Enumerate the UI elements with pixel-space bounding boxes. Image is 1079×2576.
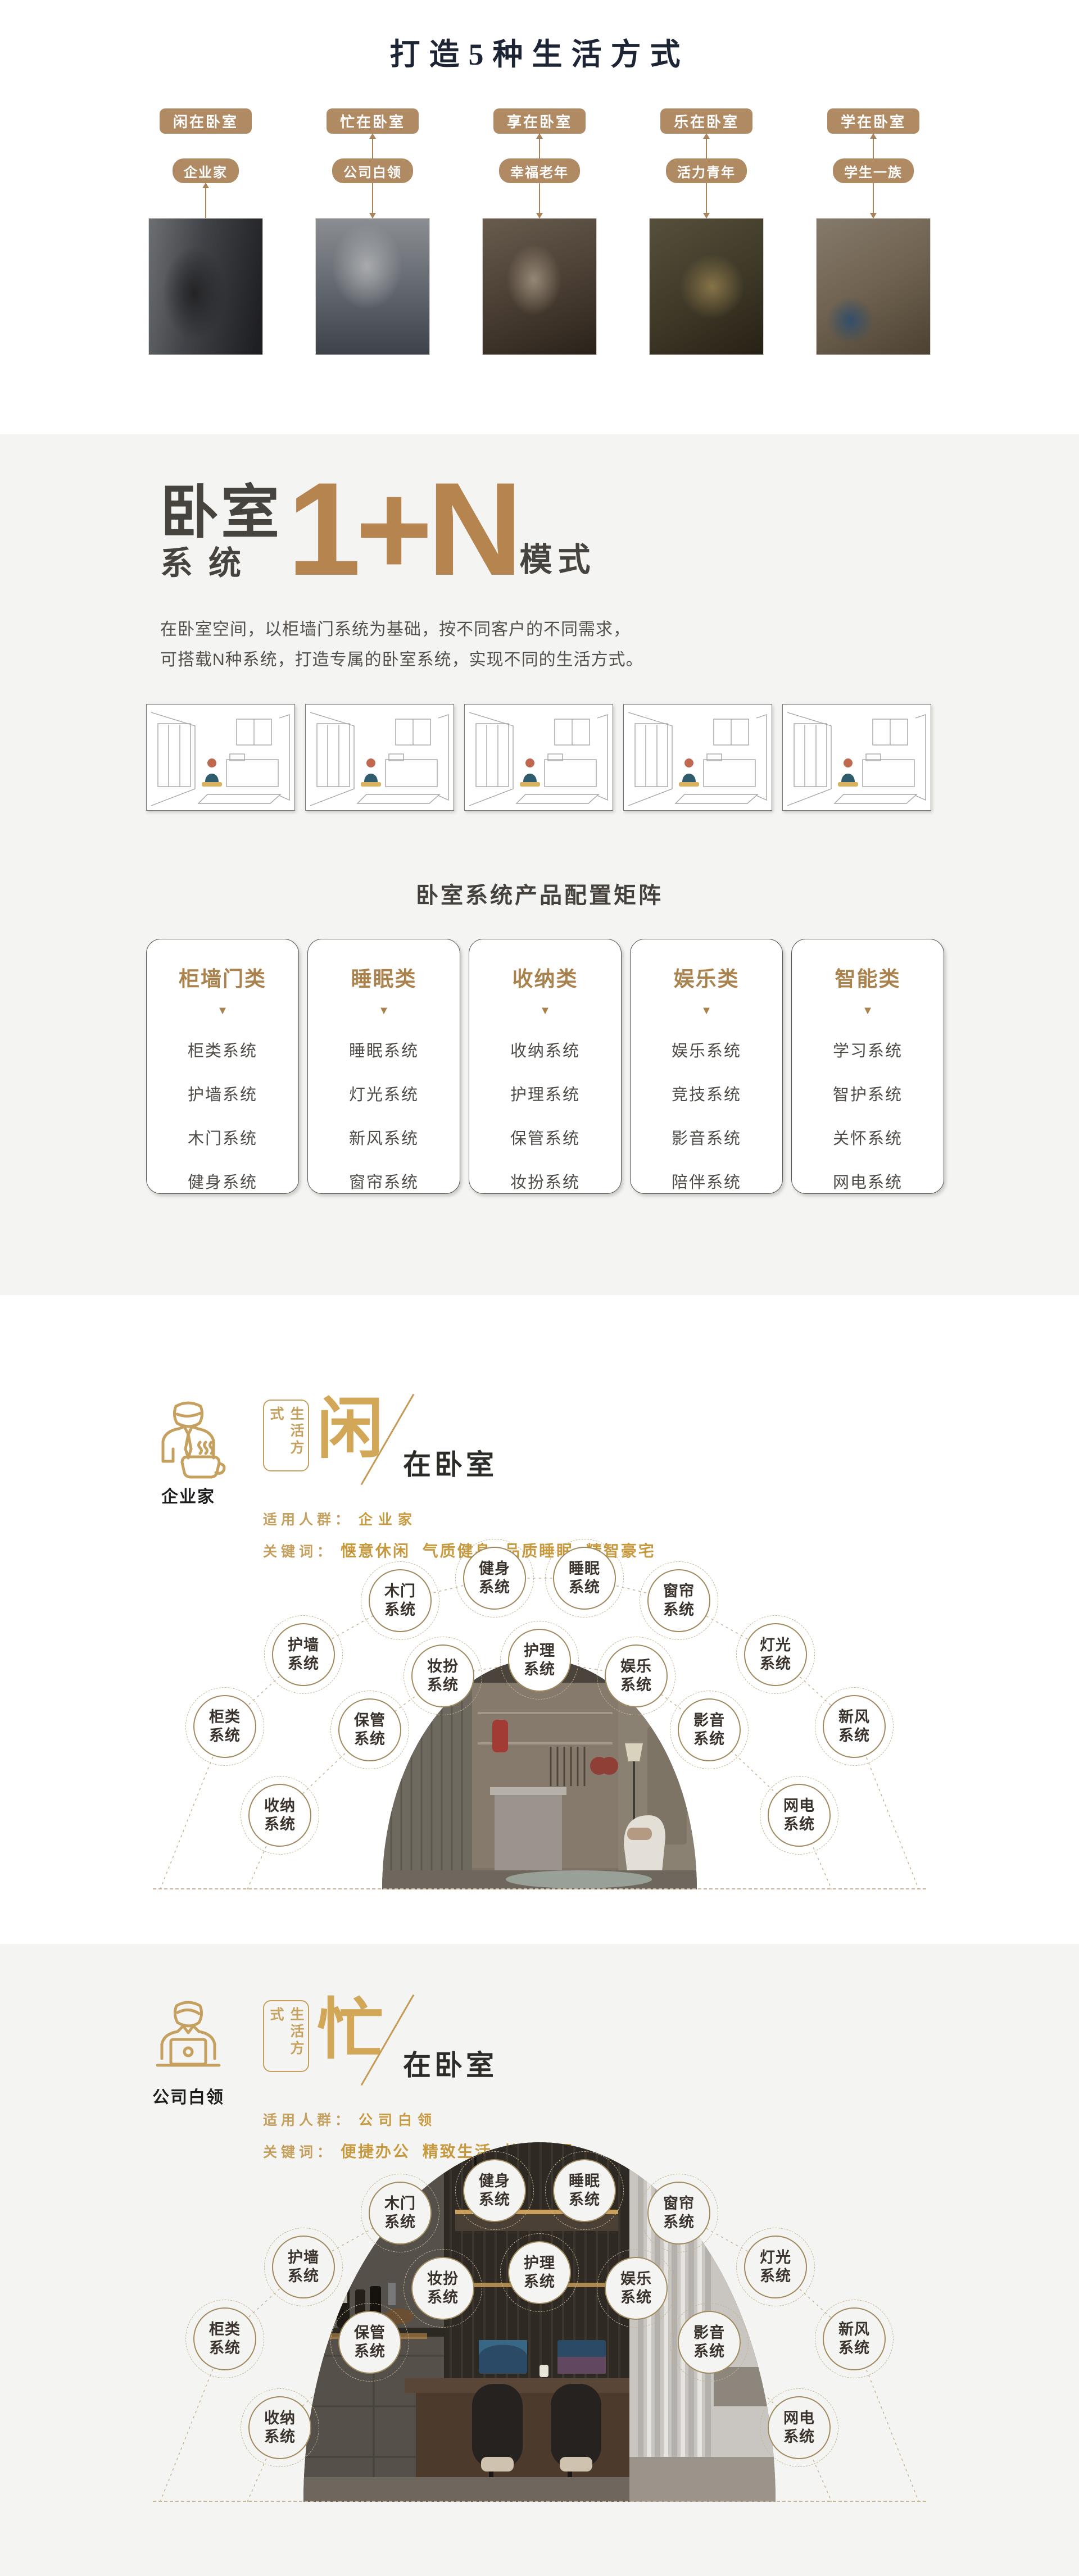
category-card: 收纳类 ▼ 收纳系统 护理系统 保管系统 妆扮系统 — [469, 939, 622, 1194]
bedroom-systems-poster: 打造5种生活方式 闲在卧室 企业家 忙在卧室 — [0, 0, 1079, 2576]
room-sketch-drawing — [147, 705, 294, 810]
system-item: 妆扮系统 — [469, 1169, 621, 1193]
headline-word-bedroom: 卧室 — [160, 485, 282, 541]
category-card: 柜墙门类 ▼ 柜类系统 护墙系统 木门系统 健身系统 — [146, 939, 299, 1194]
system-circle: 灯光 系统 — [736, 1615, 815, 1694]
audience-value: 企业家 — [359, 1512, 418, 1528]
category-title: 收纳类 — [469, 962, 621, 992]
white-collar-laptop-icon — [146, 1996, 230, 2080]
system-item: 柜类系统 — [147, 1038, 298, 1061]
up-arrow-icon — [536, 133, 543, 139]
system-item: 保管系统 — [469, 1125, 621, 1149]
up-arrow-icon — [870, 133, 877, 139]
connector-line — [372, 134, 373, 158]
room-illustrations — [146, 704, 933, 811]
lifestyle-box-label: 生活方式 — [263, 2000, 309, 2072]
system-circle: 保管 系统 — [330, 1691, 409, 1769]
system-circle: 木门 系统 — [361, 1561, 439, 1640]
up-arrow-icon — [202, 183, 209, 188]
category-title: 智能类 — [792, 962, 944, 992]
headline-word-system: 系统 — [160, 547, 282, 580]
persona-label: 公司白领 — [152, 2083, 224, 2108]
leisure-systems-fan: 柜类 系统 护墙 系统 木门 系统 — [146, 1530, 933, 1889]
category-card: 睡眠类 ▼ 睡眠系统 灯光系统 新风系统 窗帘系统 — [307, 939, 460, 1194]
student-study-photo — [816, 218, 931, 355]
system-circle: 收纳 系统 — [241, 2388, 319, 2467]
persona-tag: 幸福老年 — [499, 158, 580, 183]
section-five-lifestyles: 打造5种生活方式 闲在卧室 企业家 忙在卧室 — [0, 0, 1079, 434]
room-sketch-drawing — [624, 705, 772, 810]
system-item: 智护系统 — [792, 1082, 944, 1105]
system-item: 收纳系统 — [469, 1038, 621, 1061]
system-item: 木门系统 — [147, 1125, 298, 1149]
triangle-down-icon: ▼ — [147, 1005, 298, 1017]
lifestyle-column: 享在卧室 幸福老年 — [482, 108, 597, 355]
connector-line — [205, 183, 206, 218]
lifestyle-box-label: 生活方式 — [263, 1400, 309, 1471]
triangle-down-icon: ▼ — [792, 1005, 944, 1017]
lifestyle-column: 忙在卧室 公司白领 — [315, 108, 430, 355]
system-circle: 网电 系统 — [760, 1776, 838, 1855]
system-circle: 妆扮 系统 — [404, 1637, 482, 1715]
lifestyle-tag: 闲在卧室 — [160, 108, 252, 134]
system-item: 网电系统 — [792, 1169, 944, 1193]
system-circle: 护理 系统 — [500, 1621, 579, 1700]
lifestyle-column: 闲在卧室 企业家 — [148, 108, 263, 355]
office-lady-laptop-photo — [315, 218, 430, 355]
down-arrow-icon — [536, 213, 543, 219]
connector-line — [372, 183, 373, 218]
system-item: 关怀系统 — [792, 1125, 944, 1149]
up-arrow-icon — [369, 133, 376, 139]
down-arrow-icon — [369, 213, 376, 219]
system-item: 竞技系统 — [631, 1082, 782, 1105]
system-circle: 新风 系统 — [815, 2300, 894, 2378]
system-item: 娱乐系统 — [631, 1038, 782, 1061]
lifestyle-column: 乐在卧室 活力青年 — [649, 108, 764, 355]
lifestyle-columns: 闲在卧室 企业家 忙在卧室 公司白领 — [148, 108, 931, 355]
busy-systems-fan: 柜类 系统 护墙 系统 木门 系统 — [146, 2142, 933, 2502]
connector-line — [873, 183, 874, 218]
system-item: 学习系统 — [792, 1038, 944, 1061]
system-item: 睡眠系统 — [308, 1038, 460, 1061]
category-card: 娱乐类 ▼ 娱乐系统 竞技系统 影音系统 陪伴系统 — [630, 939, 783, 1194]
system-circle: 护墙 系统 — [264, 2228, 343, 2306]
page-title: 打造5种生活方式 — [0, 0, 1079, 74]
audience-label: 适用人群： — [263, 1512, 353, 1528]
connector-line — [873, 134, 874, 158]
category-title: 柜墙门类 — [147, 962, 298, 992]
lifestyle-big-character: 忙 — [317, 1996, 383, 2065]
system-circle: 健身 系统 — [455, 1539, 534, 1618]
triangle-down-icon: ▼ — [308, 1005, 460, 1017]
young-friends-photo — [649, 218, 764, 355]
system-circle: 柜类 系统 — [185, 1687, 264, 1766]
connector-line — [706, 134, 707, 158]
connector-line — [539, 134, 540, 158]
lifestyle-rest-word: 在卧室 — [403, 1442, 497, 1492]
system-circle: 睡眠 系统 — [545, 1539, 624, 1618]
businessman-coffee-icon — [146, 1395, 230, 1479]
category-card: 智能类 ▼ 学习系统 智护系统 关怀系统 网电系统 — [791, 939, 944, 1194]
mode-description: 在卧室空间，以柜墙门系统为基础，按不同客户的不同需求， 可搭载N种系统，打造专属… — [146, 615, 933, 675]
connector-line — [706, 183, 707, 218]
audience-row: 适用人群：企业家 — [263, 1509, 656, 1529]
lifestyle-tag: 忙在卧室 — [327, 108, 419, 134]
system-circle: 妆扮 系统 — [404, 2249, 482, 2328]
system-circle: 收纳 系统 — [241, 1776, 319, 1855]
system-item: 护墙系统 — [147, 1082, 298, 1105]
triangle-down-icon: ▼ — [631, 1005, 782, 1017]
system-item: 陪伴系统 — [631, 1169, 782, 1193]
system-circle: 护理 系统 — [500, 2233, 579, 2312]
lifestyle-tag: 享在卧室 — [493, 108, 586, 134]
system-circle: 影音 系统 — [670, 2303, 749, 2382]
room-sketch-drawing — [465, 705, 613, 810]
persona-label: 企业家 — [161, 1483, 215, 1507]
leisure-profile-header: 企业家 生活方式 闲 在卧室 适用人群：企业家 关键词：惬意休闲 气质健身 品质… — [0, 1295, 1079, 1561]
system-circle: 灯光 系统 — [736, 2228, 815, 2306]
down-arrow-icon — [870, 213, 877, 219]
system-circle: 睡眠 系统 — [545, 2151, 624, 2230]
lifestyle-rest-word: 在卧室 — [403, 2043, 497, 2092]
triangle-down-icon: ▼ — [469, 1005, 621, 1017]
mode-headline: 卧室 系统 1+N 模式 — [146, 434, 933, 580]
audience-value: 公司白领 — [359, 2112, 437, 2128]
system-circle: 影音 系统 — [670, 1691, 749, 1769]
businessman-phone-photo — [148, 218, 263, 355]
room-sketch-drawing — [306, 705, 454, 810]
system-item: 健身系统 — [147, 1169, 298, 1193]
system-item: 灯光系统 — [308, 1082, 460, 1105]
system-item: 窗帘系统 — [308, 1169, 460, 1193]
system-item: 护理系统 — [469, 1082, 621, 1105]
room-sketch-drawing — [783, 705, 931, 810]
system-item: 新风系统 — [308, 1125, 460, 1149]
persona-tag: 学生一族 — [833, 158, 914, 183]
fan-baseline — [153, 2501, 926, 2502]
persona-tag: 公司白领 — [332, 158, 413, 183]
system-circle: 健身 系统 — [455, 2151, 534, 2230]
fan-baseline — [153, 1888, 926, 1889]
system-circle: 娱乐 系统 — [597, 2249, 675, 2328]
system-circle: 窗帘 系统 — [640, 2174, 718, 2252]
lifestyle-big-character: 闲 — [317, 1395, 383, 1465]
lifestyle-tag: 乐在卧室 — [660, 108, 752, 134]
section-leisure-in-bedroom: 企业家 生活方式 闲 在卧室 适用人群：企业家 关键词：惬意休闲 气质健身 品质… — [0, 1295, 1079, 1944]
category-title: 娱乐类 — [631, 962, 782, 992]
matrix-title: 卧室系统产品配置矩阵 — [146, 877, 933, 910]
up-arrow-icon — [703, 133, 710, 139]
system-circle: 娱乐 系统 — [597, 1637, 675, 1715]
connector-line — [539, 183, 540, 218]
system-circle: 护墙 系统 — [264, 1615, 343, 1694]
matrix-cards: 柜墙门类 ▼ 柜类系统 护墙系统 木门系统 健身系统 睡眠类 ▼ 睡眠系统 灯光… — [146, 939, 944, 1194]
section-busy-in-bedroom: 公司白领 生活方式 忙 在卧室 适用人群：公司白领 关键词：便捷办公 精致生活 … — [0, 1944, 1079, 2576]
busy-profile-header: 公司白领 生活方式 忙 在卧室 适用人群：公司白领 关键词：便捷办公 精致生活 … — [0, 1944, 1079, 2162]
system-circle: 木门 系统 — [361, 2174, 439, 2252]
system-circle: 柜类 系统 — [185, 2300, 264, 2378]
section-one-plus-n: 卧室 系统 1+N 模式 在卧室空间，以柜墙门系统为基础，按不同客户的不同需求，… — [0, 434, 1079, 1295]
down-arrow-icon — [703, 213, 710, 219]
headline-word-mode: 模式 — [520, 544, 596, 580]
system-circle: 网电 系统 — [760, 2388, 838, 2467]
system-circle: 窗帘 系统 — [640, 1561, 718, 1640]
persona-tag: 企业家 — [173, 158, 239, 183]
system-item: 影音系统 — [631, 1125, 782, 1149]
lifestyle-column: 学在卧室 学生一族 — [816, 108, 931, 355]
audience-row: 适用人群：公司白领 — [263, 2109, 574, 2129]
lifestyle-tag: 学在卧室 — [827, 108, 919, 134]
category-title: 睡眠类 — [308, 962, 460, 992]
headline-formula: 1+N — [287, 479, 518, 580]
persona-tag: 活力青年 — [666, 158, 747, 183]
system-circle: 保管 系统 — [330, 2303, 409, 2382]
audience-label: 适用人群： — [263, 2112, 353, 2128]
system-circle: 新风 系统 — [815, 1687, 894, 1766]
happy-seniors-photo — [482, 218, 597, 355]
